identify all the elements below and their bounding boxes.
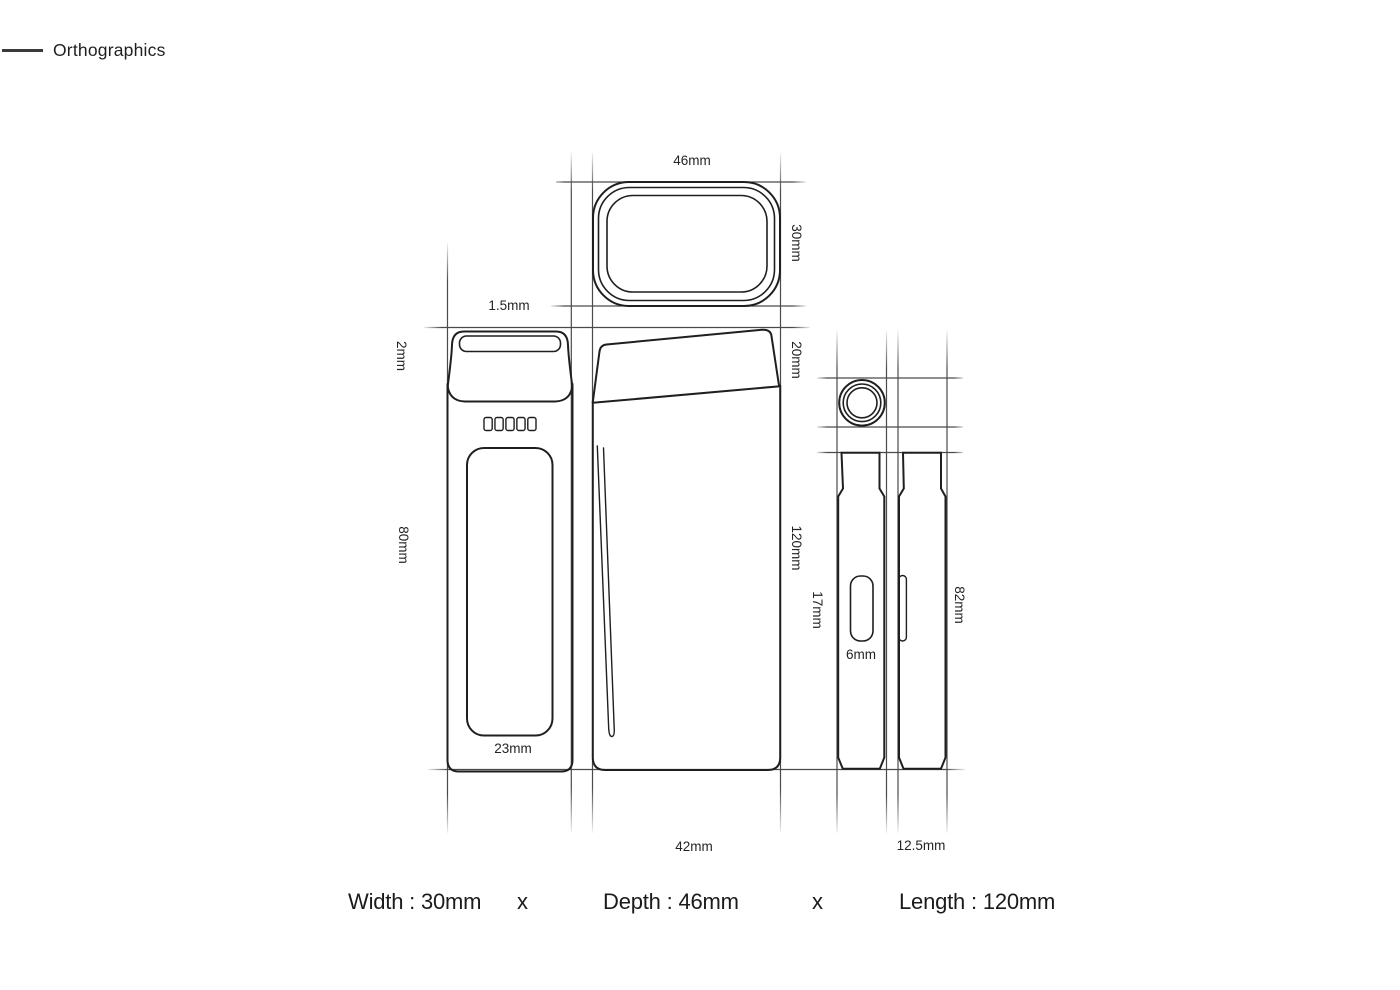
side-cap-outline bbox=[593, 330, 779, 402]
dim-button-width: 6mm bbox=[846, 647, 876, 662]
dim-length: 120mm bbox=[789, 525, 804, 570]
top-view-middle-shell bbox=[599, 188, 775, 301]
led-indicator bbox=[484, 418, 492, 431]
dim-cap-lip: 1.5mm bbox=[488, 298, 529, 313]
led-indicator bbox=[506, 418, 514, 431]
dim-side-body: 82mm bbox=[952, 586, 967, 624]
side-body-outline bbox=[593, 386, 780, 771]
side-cap-seam bbox=[593, 386, 780, 403]
dim-mouth-section: 20mm bbox=[789, 341, 804, 379]
dim-window-width: 23mm bbox=[494, 741, 532, 756]
dim-front-body: 80mm bbox=[396, 526, 411, 564]
summary-separator: x bbox=[517, 889, 528, 915]
summary-width: Width : 30mm bbox=[348, 889, 481, 915]
dim-base-depth: 42mm bbox=[675, 839, 713, 854]
side-window-edge bbox=[597, 446, 614, 737]
dim-top-width: 46mm bbox=[673, 153, 711, 168]
front-window-panel bbox=[467, 448, 553, 736]
dim-half-width: 12.5mm bbox=[897, 838, 946, 853]
edge-mouthpiece-ring-inner bbox=[847, 388, 877, 418]
dimension-labels: 46mm 30mm 1.5mm 2mm 80mm 23mm 20mm 120mm… bbox=[394, 153, 967, 854]
dim-cap-top: 2mm bbox=[394, 341, 409, 371]
summary-length: Length : 120mm bbox=[899, 889, 1055, 915]
front-view bbox=[448, 332, 573, 772]
edge-front-half-outline bbox=[838, 453, 884, 769]
side-view bbox=[593, 330, 780, 770]
dimension-summary: Width : 30mm x Depth : 46mm x Length : 1… bbox=[0, 889, 1400, 919]
top-view-outer-shell bbox=[593, 182, 780, 306]
front-mouthpiece-shoulder bbox=[448, 384, 573, 402]
led-indicator bbox=[495, 418, 503, 431]
front-mouthpiece-opening bbox=[460, 336, 561, 352]
led-indicator-row bbox=[484, 418, 536, 431]
edge-button-front bbox=[851, 576, 874, 641]
edge-mouthpiece-ring-middle bbox=[843, 384, 881, 422]
top-view-inner-opening bbox=[607, 196, 767, 293]
edge-mouthpiece-ring-outer bbox=[839, 380, 885, 426]
dim-button-length: 17mm bbox=[810, 591, 825, 629]
top-view bbox=[593, 182, 780, 306]
dim-top-depth: 30mm bbox=[789, 224, 804, 262]
orthographic-drawing: 46mm 30mm 1.5mm 2mm 80mm 23mm 20mm 120mm… bbox=[0, 0, 1400, 990]
front-mouthpiece-outline bbox=[448, 332, 573, 389]
summary-depth: Depth : 46mm bbox=[603, 889, 739, 915]
edge-view bbox=[838, 380, 945, 769]
summary-separator: x bbox=[812, 889, 823, 915]
led-indicator bbox=[528, 418, 536, 431]
led-indicator bbox=[517, 418, 525, 431]
